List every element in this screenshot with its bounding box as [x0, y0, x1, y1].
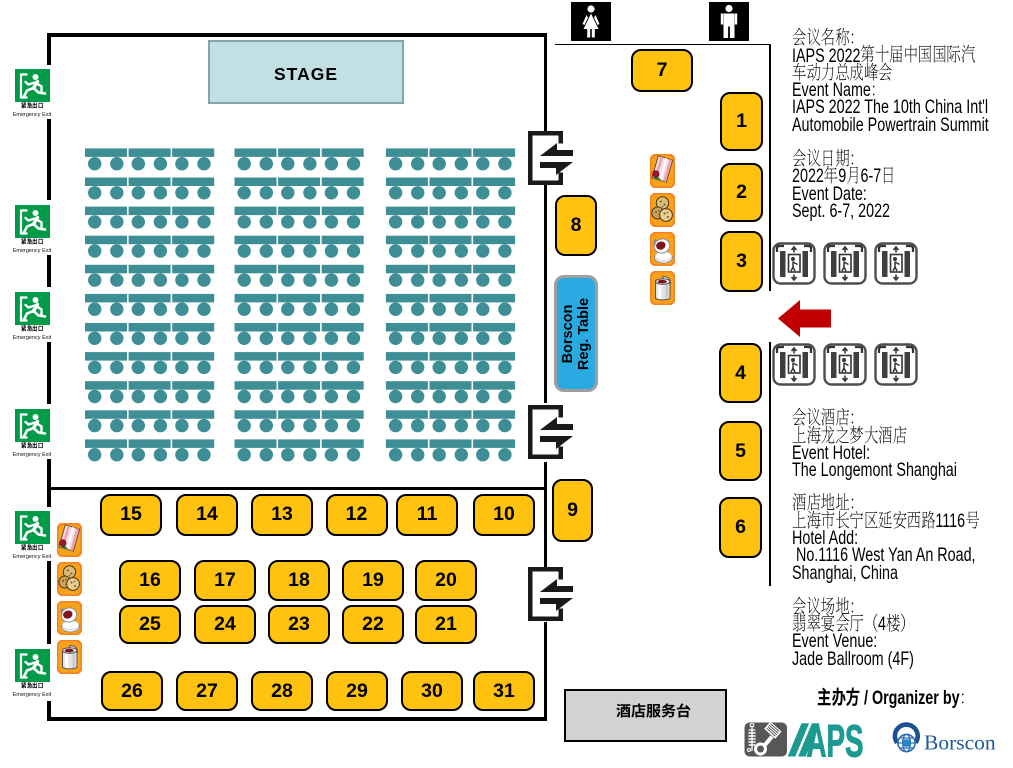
svg-text:APS: APS — [807, 719, 864, 759]
svg-text:Borscon: Borscon — [924, 731, 996, 755]
